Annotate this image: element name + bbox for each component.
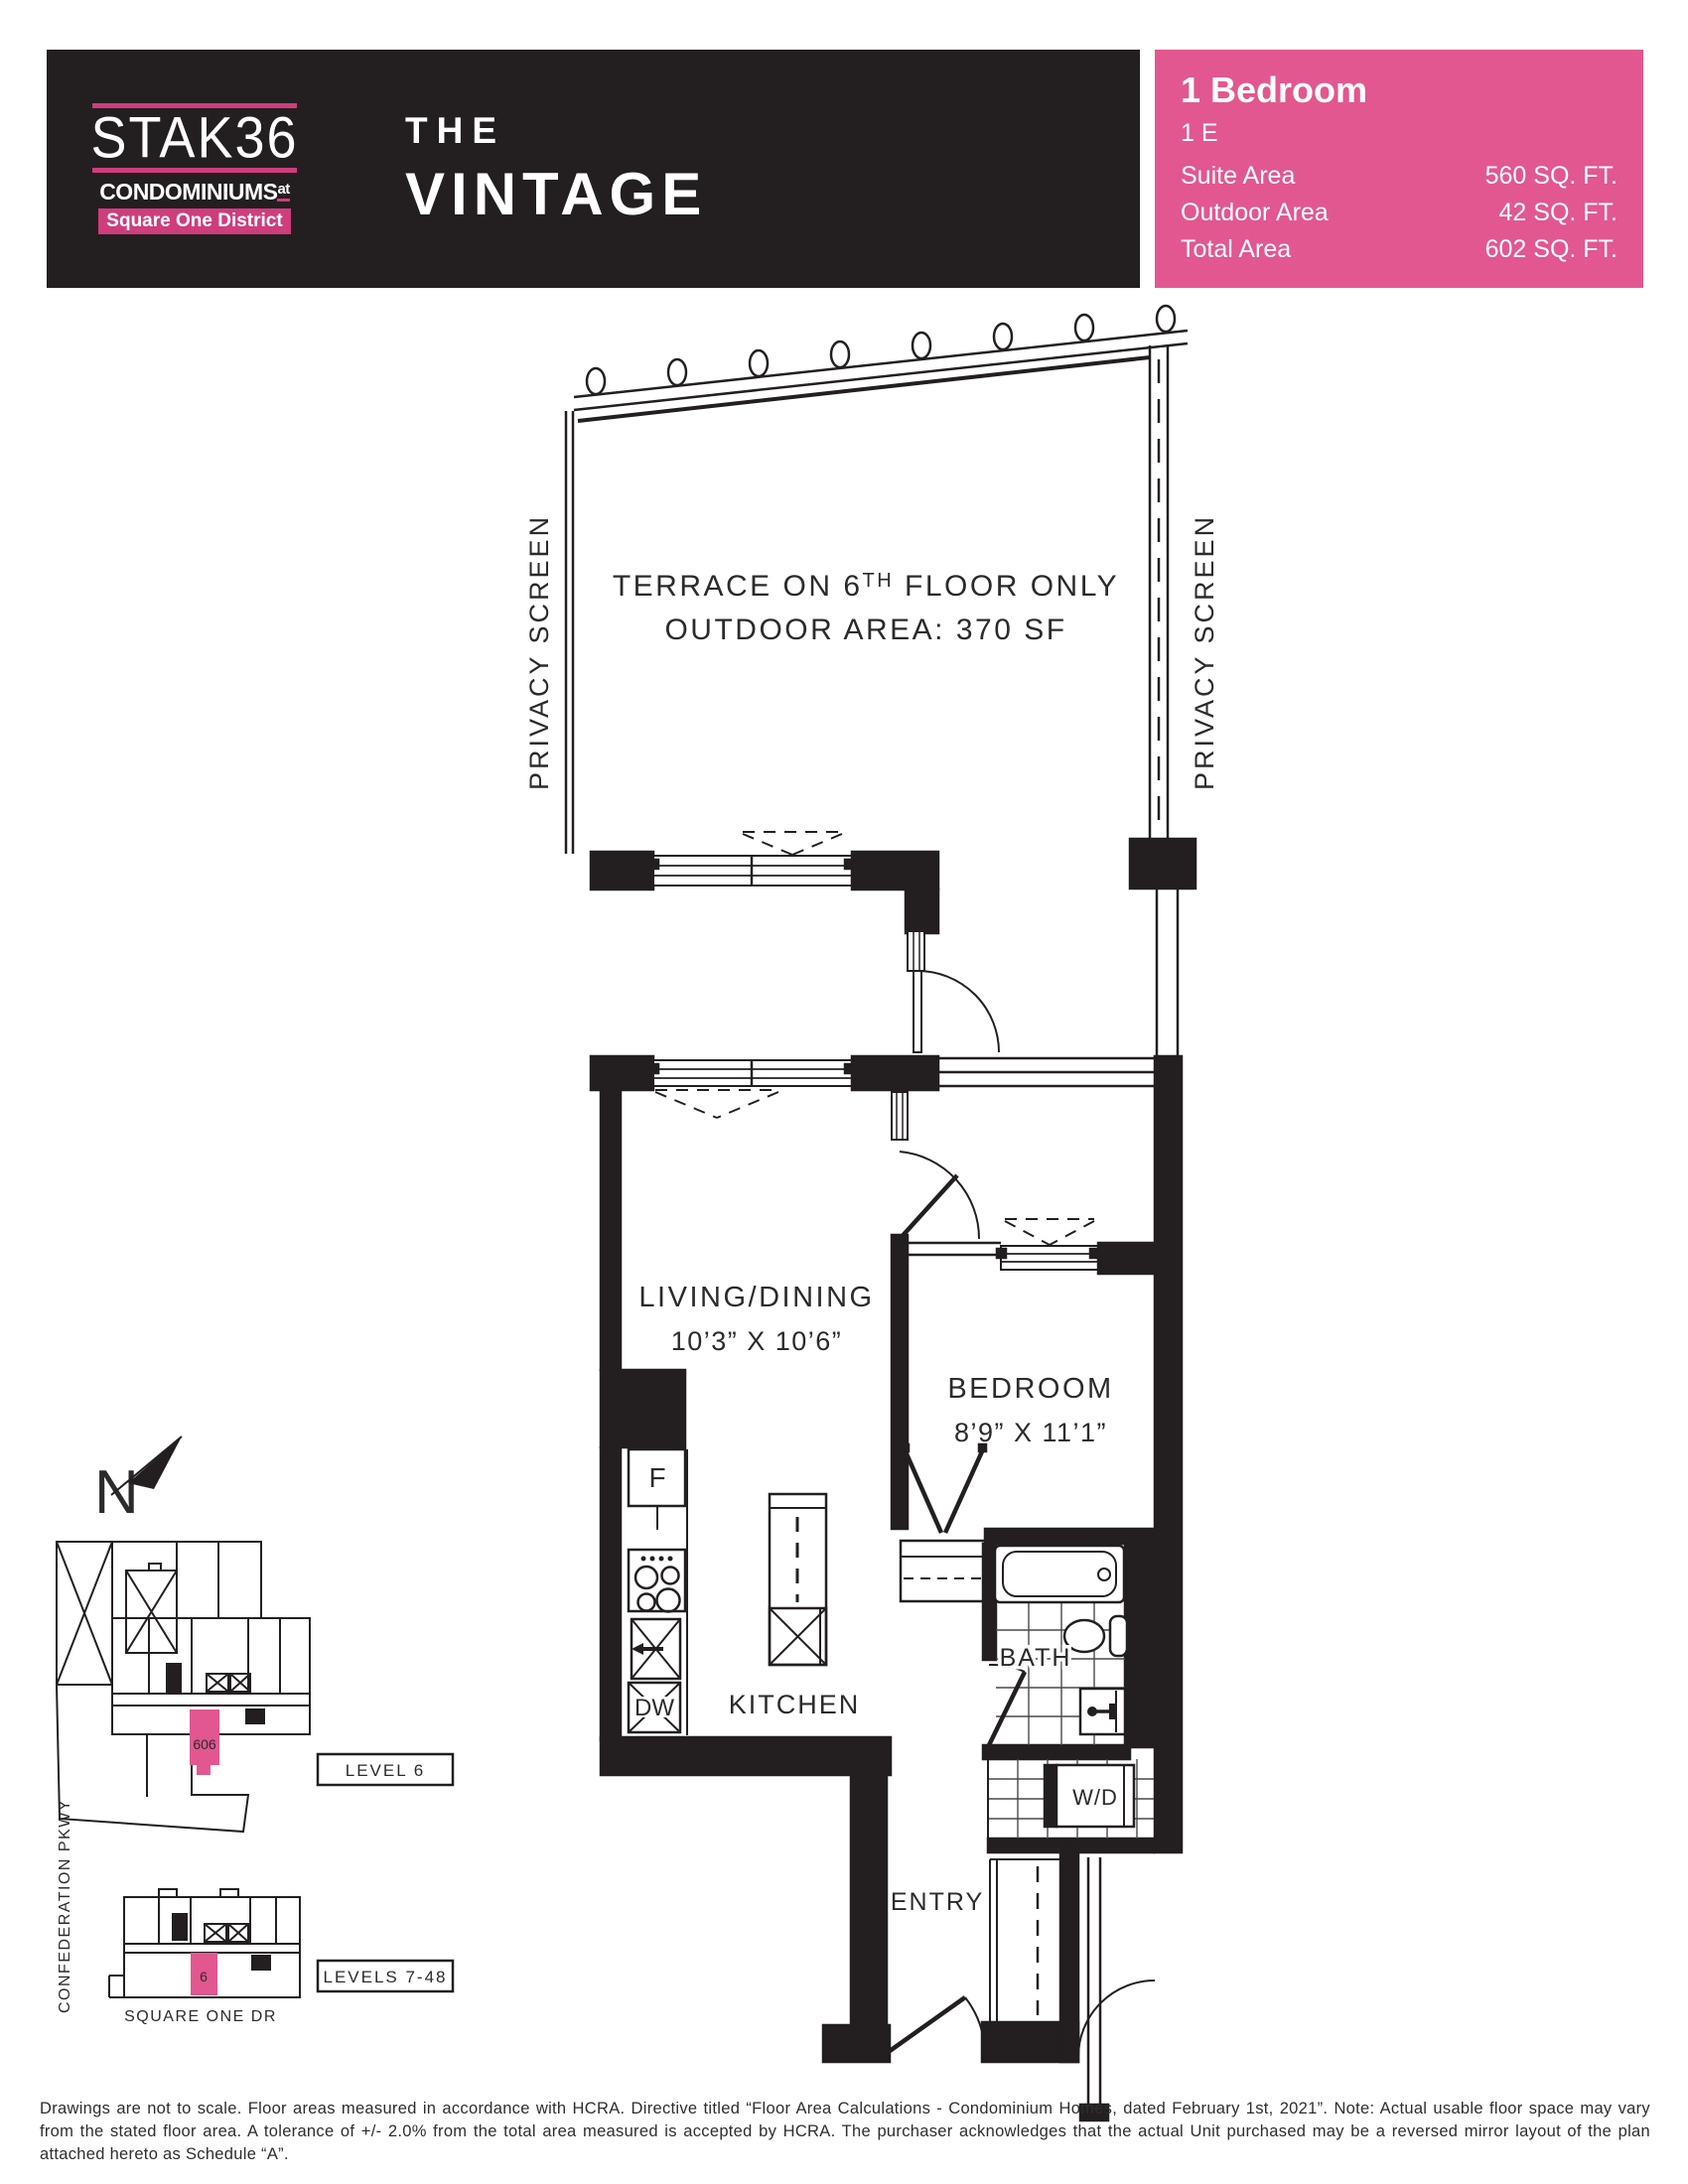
dishwasher-label: DW xyxy=(634,1695,674,1721)
terrace-note-line1: TERRACE ON 6TH FLOOR ONLY xyxy=(613,570,1119,603)
bath-east-wall xyxy=(1125,1544,1155,1747)
living-dining-dims: 10’3” X 10’6” xyxy=(671,1326,843,1356)
unit-north-wall xyxy=(591,1056,1155,1118)
street-label-square-one-dr: SQUARE ONE DR xyxy=(124,2008,277,2025)
bedroom-label: BEDROOM xyxy=(947,1373,1113,1405)
bath-door xyxy=(989,1665,1025,1745)
unit-606-label: 606 xyxy=(193,1736,216,1752)
bathtub-icon xyxy=(995,1546,1124,1602)
privacy-screen-left-label: PRIVACY SCREEN xyxy=(524,514,554,790)
entry-label: ENTRY xyxy=(891,1888,984,1916)
fridge-label: F xyxy=(648,1462,665,1493)
west-wall xyxy=(601,1090,891,1775)
sink-icon xyxy=(632,1619,680,1679)
balcony-railing xyxy=(938,1058,1155,1086)
bedroom-window xyxy=(908,1219,1155,1274)
bedroom-door xyxy=(892,1092,979,1239)
floorplan-drawing: TERRACE ON 6TH FLOOR ONLY OUTDOOR AREA: … xyxy=(0,0,1688,2184)
legal-disclaimer: Drawings are not to scale. Floor areas m… xyxy=(40,2098,1650,2166)
privacy-screen-right xyxy=(1130,345,1196,1056)
bath-laundry-wall xyxy=(983,1745,1130,1759)
level6-tag-label: LEVEL 6 xyxy=(346,1761,425,1780)
kitchen-label: KITCHEN xyxy=(729,1690,861,1719)
unit-6-label: 6 xyxy=(200,1969,208,1984)
keyplan-levels7-48: 6 LEVELS 7-48 SQUARE ONE DR CONFEDERATIO… xyxy=(57,1799,453,2025)
terrace-door xyxy=(906,889,999,1052)
entry-door xyxy=(890,1997,985,2051)
street-label-confederation-pkwy: CONFEDERATION PKWY xyxy=(57,1799,73,2013)
bath-north-wall xyxy=(985,1529,1155,1544)
toilet-icon xyxy=(1064,1616,1127,1656)
bedroom-west-wall xyxy=(892,1235,908,1529)
bath-label: BATH xyxy=(1000,1644,1072,1672)
operable-window-icon xyxy=(743,832,842,855)
laundry xyxy=(988,1759,1154,1839)
privacy-screen-right-label: PRIVACY SCREEN xyxy=(1190,514,1219,790)
terrace-wall xyxy=(591,832,938,889)
kitchen-island xyxy=(770,1494,826,1665)
privacy-screen-left xyxy=(566,411,573,854)
corridor-wall xyxy=(1078,1857,1155,2120)
compass-n-label: N xyxy=(94,1458,139,1527)
bedroom-closet xyxy=(901,1444,986,1601)
east-wall xyxy=(1155,1056,1182,1852)
cooktop-icon xyxy=(629,1550,685,1612)
terrace-railing xyxy=(574,306,1188,421)
operable-window-icon xyxy=(1005,1219,1094,1245)
vanity-sink-icon xyxy=(1080,1689,1125,1734)
compass: N xyxy=(94,1436,182,1527)
levels7-48-tag-label: LEVELS 7-48 xyxy=(323,1968,447,1986)
living-dining-label: LIVING/DINING xyxy=(638,1282,874,1313)
keyplan-level6: 606 LEVEL 6 xyxy=(57,1542,453,1832)
operable-window-icon xyxy=(655,1090,778,1118)
bedroom-dims: 8’9” X 11’1” xyxy=(954,1418,1107,1447)
terrace-note-line2: OUTDOOR AREA: 370 SF xyxy=(664,614,1066,646)
washer-dryer-label: W/D xyxy=(1072,1785,1118,1810)
